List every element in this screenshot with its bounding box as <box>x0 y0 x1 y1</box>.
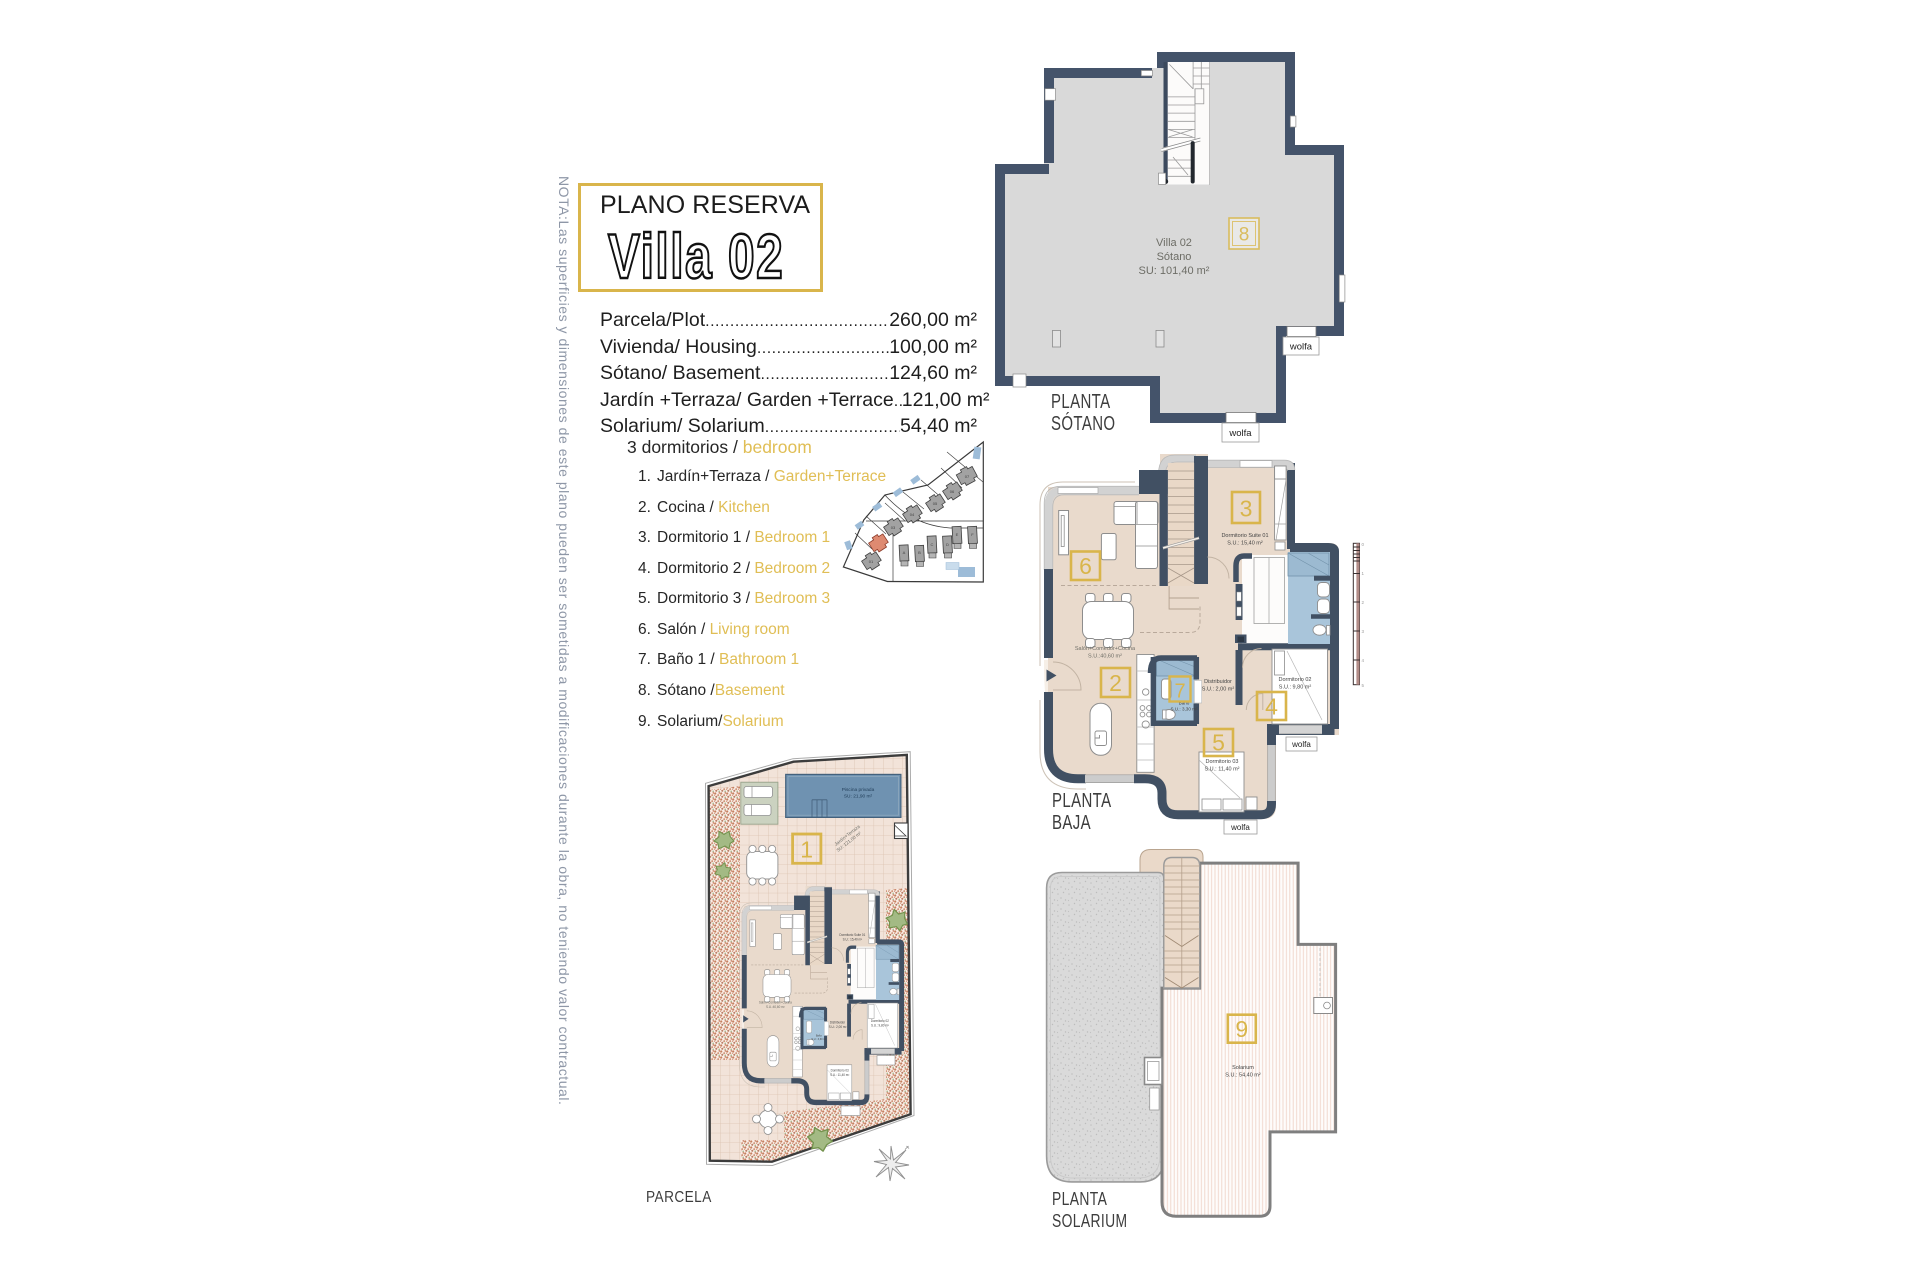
svg-text:2: 2 <box>1109 670 1122 696</box>
svg-text:A: A <box>903 550 906 555</box>
svg-text:2: 2 <box>1362 600 1365 605</box>
svg-text:S.U.: 54,40 m²: S.U.: 54,40 m² <box>1225 1073 1261 1079</box>
svg-text:Salón+Comedor+Cocina: Salón+Comedor+Cocina <box>1075 646 1136 652</box>
svg-text:D: D <box>946 542 949 547</box>
svg-text:3: 3 <box>1240 496 1253 522</box>
svg-text:5: 5 <box>1212 730 1225 756</box>
svg-text:Dormitorio 02: Dormitorio 02 <box>1278 677 1311 683</box>
svg-text:9: 9 <box>1235 1016 1248 1042</box>
svg-text:wolfa: wolfa <box>1230 823 1250 832</box>
svg-text:1: 1 <box>1362 571 1365 576</box>
svg-text:0: 0 <box>1362 542 1365 547</box>
svg-text:7: 7 <box>1174 681 1185 703</box>
svg-text:S.U.: 11,40 m²: S.U.: 11,40 m² <box>1204 767 1239 773</box>
svg-text:SU: 21,90 m²: SU: 21,90 m² <box>844 794 873 800</box>
svg-text:8: 8 <box>1239 225 1250 246</box>
svg-text:S.U.: 3,30 m²: S.U.: 3,30 m² <box>1170 707 1198 712</box>
svg-text:03: 03 <box>891 525 896 530</box>
svg-text:B: B <box>918 550 921 555</box>
svg-text:1: 1 <box>800 837 813 863</box>
svg-text:Sótano: Sótano <box>1157 251 1192 263</box>
svg-text:05: 05 <box>933 501 938 506</box>
svg-text:4: 4 <box>1265 694 1278 720</box>
svg-text:Dormitorio Suite 01: Dormitorio Suite 01 <box>1221 533 1268 539</box>
svg-text:SU: 101,40 m²: SU: 101,40 m² <box>1139 265 1210 277</box>
svg-text:04: 04 <box>910 512 915 517</box>
svg-text:6: 6 <box>1079 553 1092 579</box>
svg-text:E: E <box>956 532 959 537</box>
svg-text:Dormitorio 03: Dormitorio 03 <box>1205 759 1238 765</box>
svg-text:Solarium: Solarium <box>1232 1065 1254 1071</box>
svg-text:01: 01 <box>869 559 874 564</box>
svg-text:wolfa: wolfa <box>1289 342 1313 353</box>
svg-text:S.U.: 15,40 m²: S.U.: 15,40 m² <box>1227 541 1263 547</box>
svg-text:Distribuidor: Distribuidor <box>1204 679 1232 685</box>
svg-text:wolfa: wolfa <box>1228 428 1252 439</box>
svg-text:4: 4 <box>1362 658 1365 663</box>
svg-text:C: C <box>931 542 934 547</box>
svg-text:S.U.:40,60 m²: S.U.:40,60 m² <box>1088 654 1122 660</box>
svg-text:Piscina privada: Piscina privada <box>842 787 875 793</box>
svg-text:S.U.: 9,80 m²: S.U.: 9,80 m² <box>1279 685 1312 691</box>
svg-text:07: 07 <box>965 474 970 479</box>
svg-text:S.U.: 2,00 m²: S.U.: 2,00 m² <box>1202 687 1235 693</box>
svg-text:Villa 02: Villa 02 <box>1156 237 1192 249</box>
svg-text:5: 5 <box>1362 683 1365 688</box>
svg-text:3: 3 <box>1362 629 1365 634</box>
svg-text:06: 06 <box>950 489 955 494</box>
svg-text:wolfa: wolfa <box>1291 740 1311 749</box>
